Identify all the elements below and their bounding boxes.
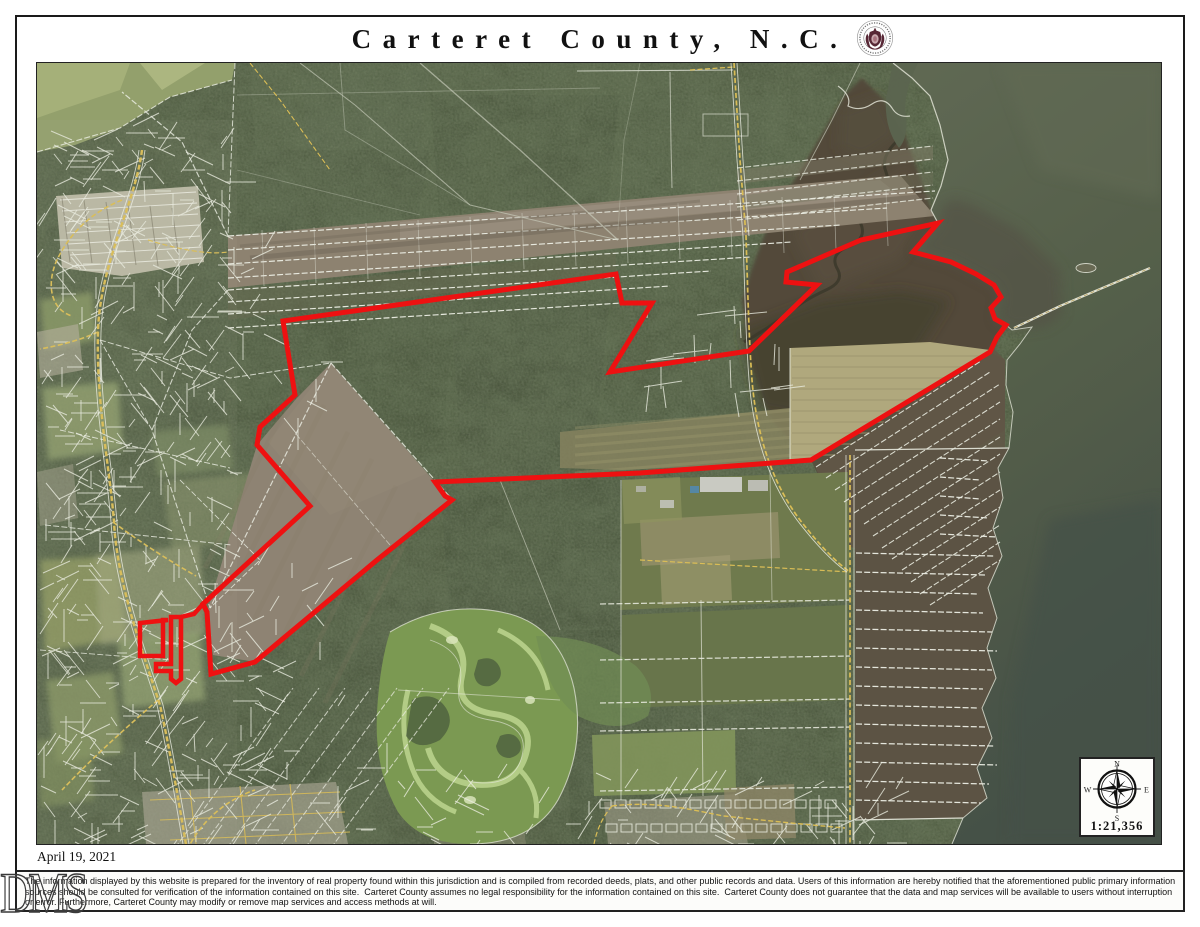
svg-text:W: W [1084, 786, 1092, 795]
svg-text:E: E [1144, 786, 1149, 795]
svg-text:N: N [1114, 760, 1120, 769]
